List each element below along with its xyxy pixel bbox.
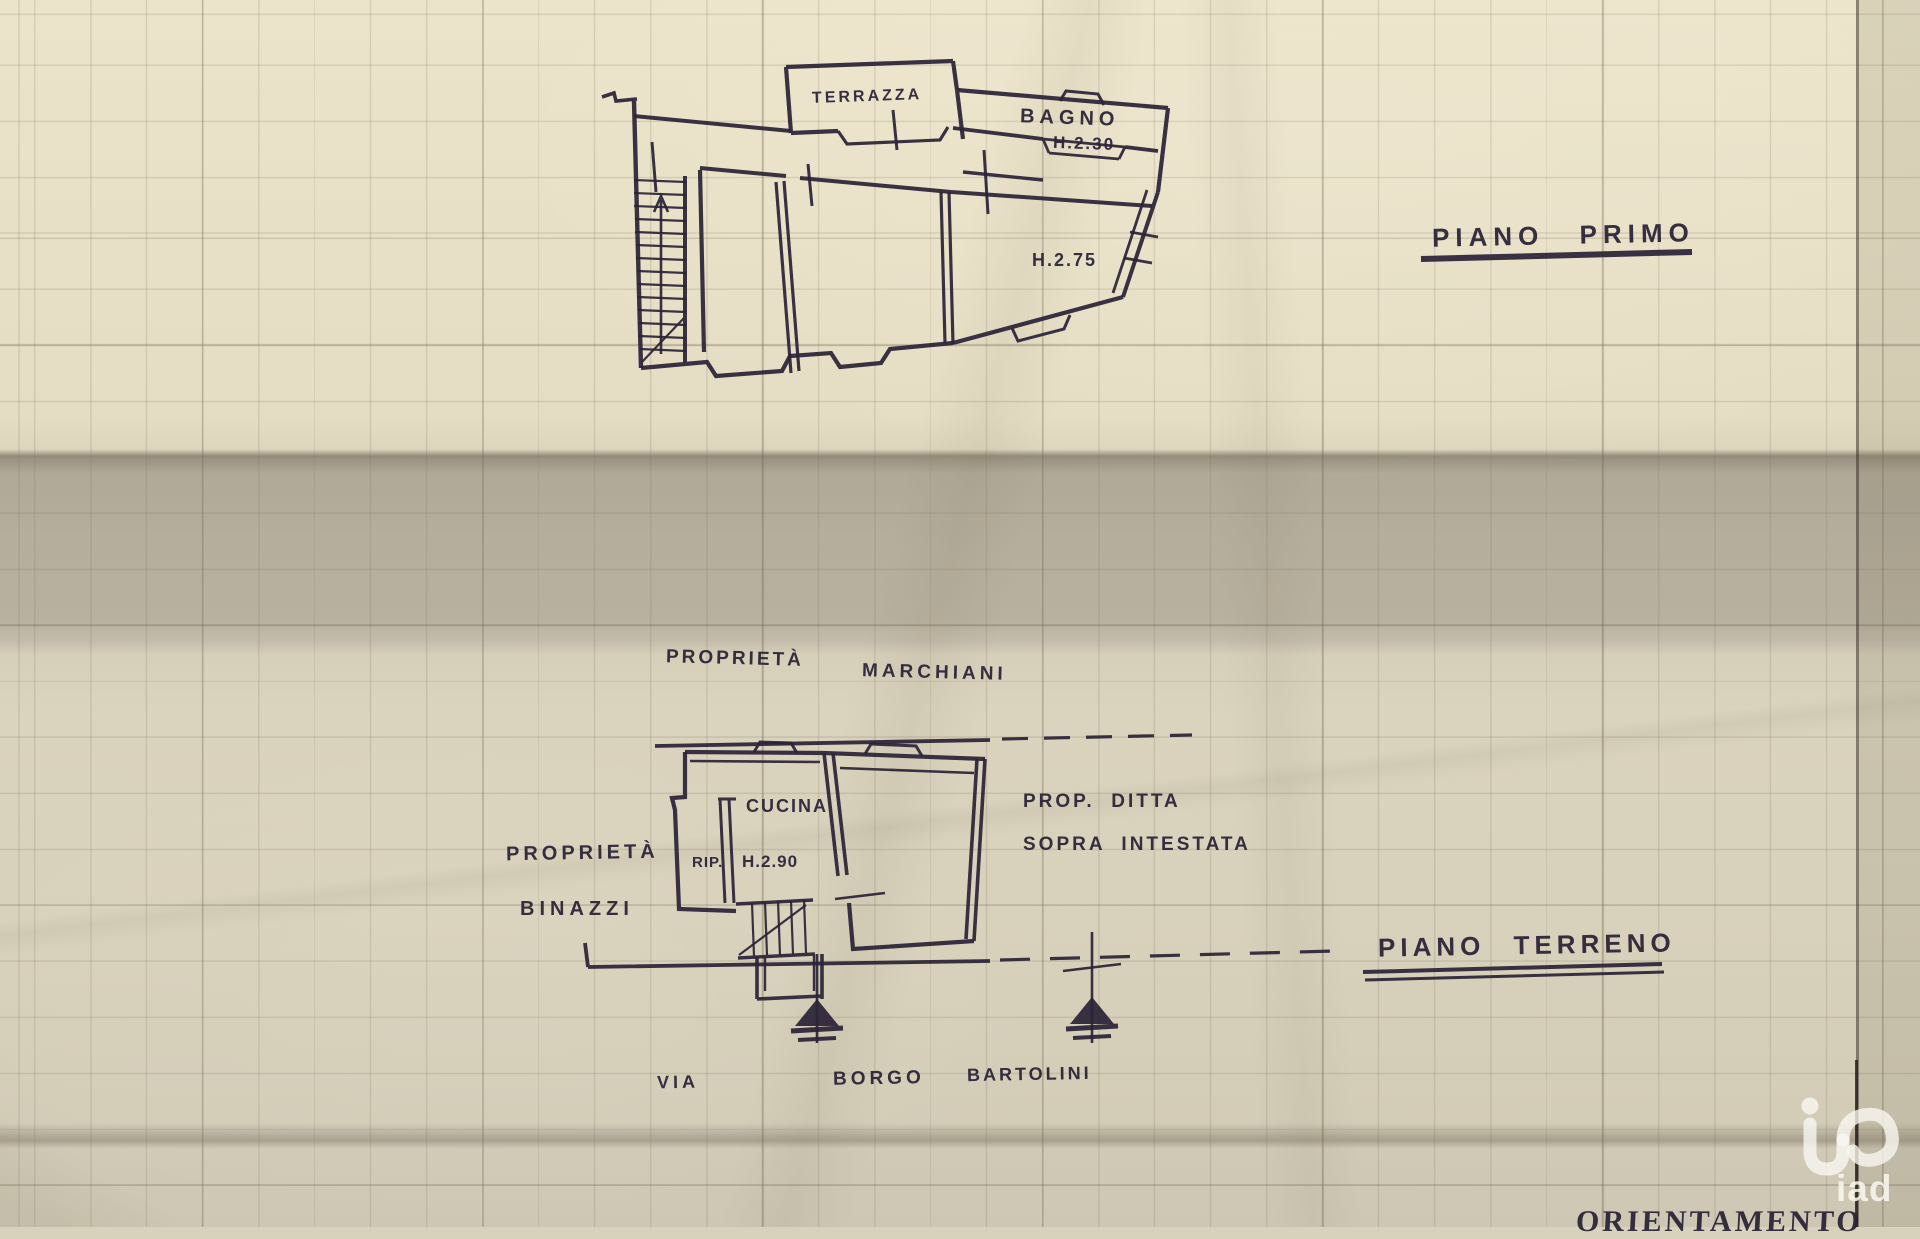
partition-wall-1 [700,170,704,352]
first-floor-roof-hook [602,93,637,101]
bagno-bottom-wall [963,172,1043,180]
scanned-floor-plan-sheet: { "colors": { "ink": "#2b2437", "paper_t… [0,0,1920,1227]
street-word-borgo: BORGO [833,1067,925,1091]
first-floor-title: PIANO PRIMO [1432,217,1695,253]
piano-terreno-underline-2 [1365,972,1664,980]
rip-closet-wall [718,799,736,903]
kitchen-door-tick [835,893,885,899]
rip-label: RIP. [692,854,723,871]
north-neighbor-word1: PROPRIETÀ [666,646,804,672]
terrazza-sill [838,127,948,144]
big-room-right-wall [966,759,985,941]
iad-logo-text: iad [1836,1168,1892,1210]
piano-terreno-underline-1 [1363,964,1662,972]
north-neighbor-word2: MARCHIANI [862,660,1007,686]
west-neighbor-word1: PROPRIETÀ [506,841,659,867]
ground-stairs-diagonal [739,905,806,955]
iad-logo-icon [1802,1098,1893,1170]
ground-floor-plan [585,735,1664,1043]
survey-marker-2 [1066,932,1118,1043]
north-boundary-line [655,740,990,746]
east-neighbor-line1: PROP. DITTA [1023,791,1181,813]
room-height-label: H.2.75 [1032,250,1097,271]
floor-plan-drawing [0,0,1920,1227]
rooms-top-wall [700,168,1152,206]
orientamento-label: ORIENTAMENTO [1575,1205,1863,1239]
west-neighbor-word2: BINAZZI [520,898,634,921]
ground-floor-title: PIANO TERRENO [1378,927,1676,963]
cucina-label: CUCINA [746,796,828,817]
cucina-height-label: H.2.90 [742,852,798,872]
terrazza-label: TERRAZZA [812,86,923,108]
ground-top-wall-inner [690,761,974,773]
entrance-porch-inner [765,955,814,991]
partition-wall-2 [776,181,799,373]
street-edge-dashed [1000,951,1335,960]
big-room-bottom-wall [849,903,974,949]
bagno-height-label: H.2.30 [1053,133,1116,155]
street-word-via: VIA [657,1072,699,1094]
street-word-bartolini: BARTOLINI [967,1063,1092,1086]
first-floor-plan [602,61,1692,376]
bagno-label: BAGNO [1020,105,1120,131]
north-boundary-dashed [1002,735,1192,739]
partition-wall-3 [941,192,953,344]
entrance-porch [757,954,822,999]
corridor-top-wall [634,116,791,131]
ground-left-wall [672,752,736,911]
first-floor-left-wall [634,101,641,368]
ground-stairs-treads [752,900,806,956]
east-neighbor-line2: SOPRA INTESTATA [1023,834,1251,856]
